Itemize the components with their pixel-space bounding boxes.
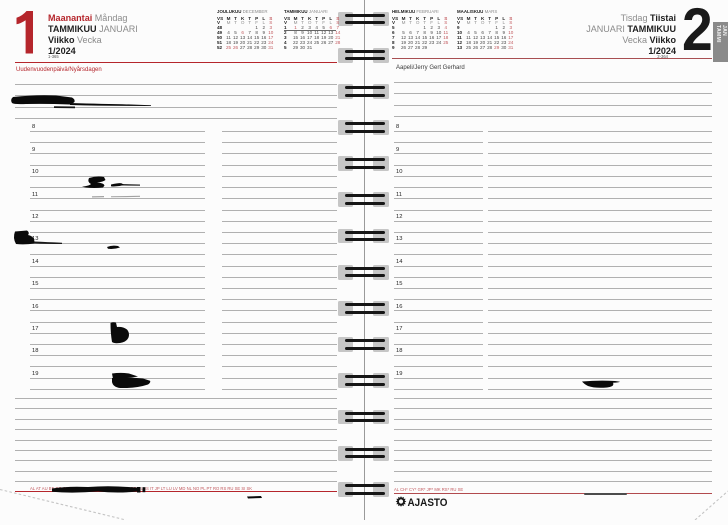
svg-text:AJASTO: AJASTO [408,496,448,508]
